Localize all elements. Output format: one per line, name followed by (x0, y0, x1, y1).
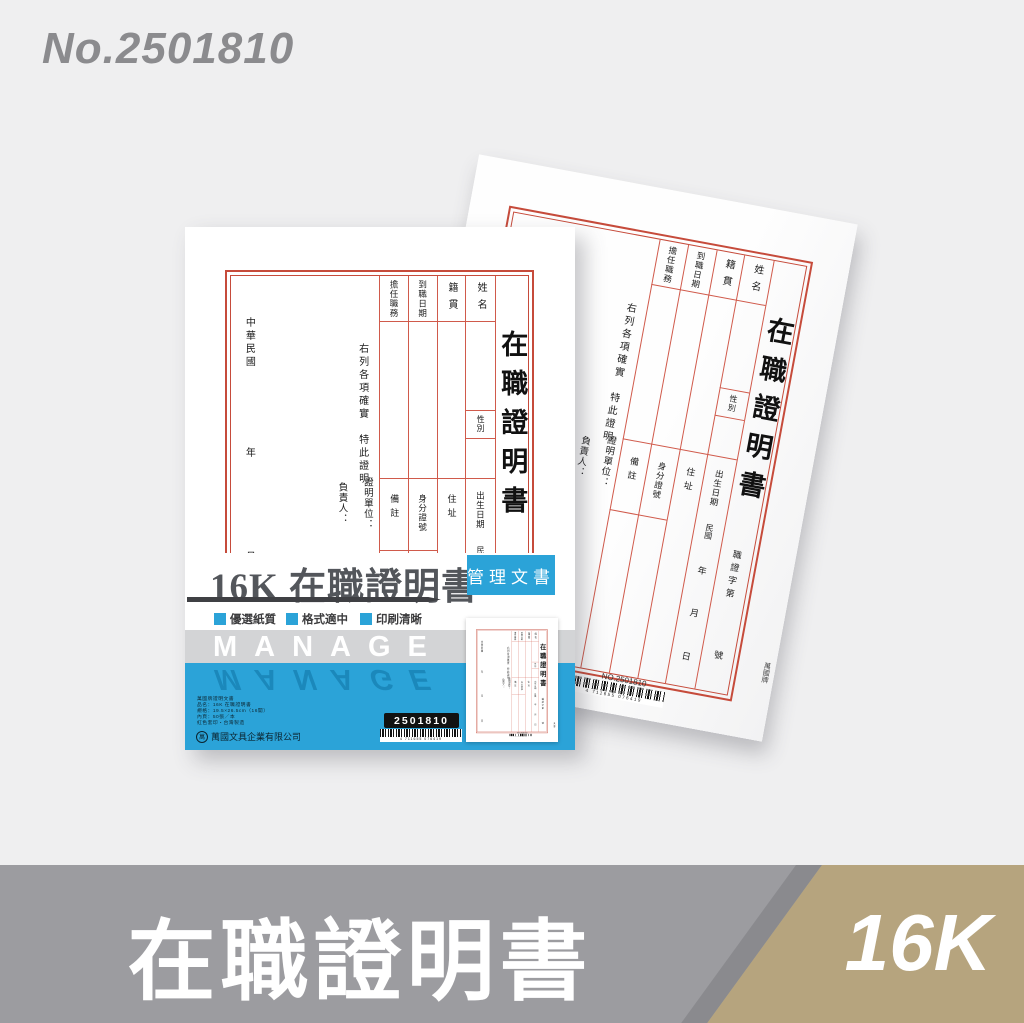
field-sex: 性別 (532, 662, 539, 669)
company-line: 萬 萬國文具企業有限公司 (196, 730, 301, 743)
birth-year-unit: 年 (532, 701, 539, 707)
product-spec-block: 萬國牌證明文書 品名：16K 在職證明書 規格：19.5×26.5cm（16開）… (197, 697, 269, 727)
employment-certificate-form: 在職證明書 職證字第 號 姓名 籍貫 到職日期 擔任職務 性別 出生日期 民國 … (186, 227, 571, 553)
feature-tag: 格式適中 (286, 611, 348, 627)
header-join-date: 到職日期 (519, 631, 526, 642)
field-birth-date: 出生日期 (532, 678, 539, 692)
grid-line (379, 321, 495, 322)
field-sex: 性別 (465, 410, 495, 438)
package-form-mount: 在職證明書 職證字第 號 姓名 籍貫 到職日期 擔任職務 性別 出生日期 民國 … (186, 227, 571, 553)
form-outer-border: 在職證明書 職證字第 號 姓名 籍貫 到職日期 擔任職務 性別 出生日期 民國 … (225, 270, 535, 553)
package-barcode: 4 711655 076419 (380, 729, 462, 742)
brand-wordmark: MANAGE (213, 631, 444, 664)
field-era: 民國 (691, 514, 726, 549)
roc-era-label: 中華民國 (232, 311, 265, 376)
field-remarks: 備註 (379, 482, 408, 534)
form-grid: 在職證明書 職證字第 號 姓名 籍貫 到職日期 擔任職務 性別 出生日期 民國 … (230, 275, 530, 553)
cert-no-suffix: 號 (539, 719, 547, 728)
birth-day-unit: 日 (668, 640, 702, 671)
mini-form-mount: 在職證明書 職證字第 號 姓名 籍貫 到職日期 擔任職務 性別 出生日期 民國 … (467, 619, 556, 741)
tag-label: 優選紙質 (230, 611, 276, 627)
employment-certificate-form: 在職證明書 職證字第 號 姓名 籍貫 到職日期 擔任職務 性別 出生日期 民國 … (467, 619, 556, 741)
cert-no-suffix: 號 (698, 633, 738, 678)
company-seal-icon: 萬 (196, 731, 208, 743)
cert-no-prefix: 職證字第 (539, 693, 547, 715)
manager-label: 負責人： (324, 474, 357, 533)
grid-line (379, 478, 495, 479)
title-underline (187, 597, 441, 602)
field-address: 住址 (525, 679, 532, 691)
product-package: 在職證明書 職證字第 號 姓名 籍貫 到職日期 擔任職務 性別 出生日期 民國 … (185, 227, 575, 750)
header-origin: 籍貫 (525, 631, 532, 642)
tag-square-icon (360, 613, 372, 625)
grid-line (465, 438, 495, 439)
catalog-number: No.2501810 (42, 24, 294, 74)
roc-day-unit: 日 (478, 718, 486, 724)
package-label-band: 16K 在職證明書 管理文書 優選紙質 格式適中 印刷清晰 MANAGE MAN… (185, 553, 575, 750)
package-form-preview: 在職證明書 職證字第 號 姓名 籍貫 到職日期 擔任職務 性別 出生日期 民國 … (185, 227, 575, 553)
roc-month-unit: 月 (478, 693, 486, 699)
banner-size-label: 16K (828, 897, 1008, 989)
manager-label: 負責人： (499, 677, 507, 691)
brand-vertical-label: 萬國牌 (553, 720, 556, 730)
barcode-digits: 4 711655 076419 (509, 736, 532, 737)
roc-year-unit: 年 (232, 439, 265, 465)
mini-form-thumbnail: 在職證明書 職證字第 號 姓名 籍貫 到職日期 擔任職務 性別 出生日期 民國 … (466, 618, 558, 742)
field-era: 民國 (465, 539, 495, 553)
birth-month-unit: 月 (532, 712, 539, 718)
form-title: 在職證明書 (495, 324, 528, 533)
bottom-banner: 在職證明書 16K (0, 865, 1024, 1023)
header-name: 姓名 (532, 631, 539, 642)
feature-tag: 印刷清晰 (360, 611, 422, 627)
sample-sheet-form-mount: 在職證明書 職證字第 號 姓名 籍貫 到職日期 擔任職務 性別 出生日期 民國 … (479, 154, 858, 224)
company-name: 萬國文具企業有限公司 (211, 730, 301, 743)
birth-day-unit: 日 (532, 722, 539, 728)
sheet-barcode: 4 711655 076419 (509, 734, 532, 738)
feature-tag: 優選紙質 (214, 611, 276, 627)
barcode-stripes (380, 729, 462, 737)
field-sex: 性別 (715, 387, 749, 420)
birth-month-unit: 月 (676, 597, 710, 628)
header-position: 擔任職務 (512, 631, 519, 642)
form-grid: 在職證明書 職證字第 號 姓名 籍貫 到職日期 擔任職務 性別 出生日期 民國 … (477, 631, 547, 732)
tag-square-icon (286, 613, 298, 625)
roc-era-label: 中華民國 (478, 639, 486, 654)
roc-year-unit: 年 (478, 669, 486, 675)
tag-label: 格式適中 (302, 611, 348, 627)
header-position: 擔任職務 (379, 276, 408, 322)
tag-square-icon (214, 613, 226, 625)
field-remarks: 備註 (512, 679, 519, 691)
banner-product-name: 在職證明書 (120, 891, 600, 1018)
header-origin: 籍貫 (437, 276, 466, 322)
barcode-digits: 4 711655 076419 (380, 737, 462, 741)
form-outer-border: 在職證明書 職證字第 號 姓名 籍貫 到職日期 擔任職務 性別 出生日期 民國 … (476, 629, 548, 733)
field-address: 住址 (437, 482, 466, 534)
field-id-number: 身分證號 (408, 479, 437, 546)
header-name: 姓名 (465, 276, 495, 322)
brand-vertical-label: 萬國牌 (755, 651, 776, 695)
cert-no-prefix: 職證字第 (495, 545, 528, 553)
product-showcase: No.2501810 在職證明書 職證字第 號 姓名 籍貫 到職日期 (0, 0, 1024, 1023)
field-birth-date: 出生日期 (465, 480, 495, 539)
form-title: 在職證明書 (539, 642, 547, 690)
spec-line: 紅色套印・台灣製造 (197, 721, 269, 727)
brand-wordmark-reflection: MANAGE (209, 663, 452, 695)
field-era: 民國 (532, 692, 539, 699)
tag-label: 印刷清晰 (376, 611, 422, 627)
grid-line (379, 550, 436, 551)
header-join-date: 到職日期 (408, 276, 437, 322)
roc-month-unit: 月 (232, 543, 265, 553)
item-code-plate: 2501810 (384, 713, 459, 728)
birth-year-unit: 年 (684, 555, 718, 586)
category-badge: 管理文書 (467, 555, 555, 595)
field-id-number: 身分證號 (519, 678, 526, 694)
